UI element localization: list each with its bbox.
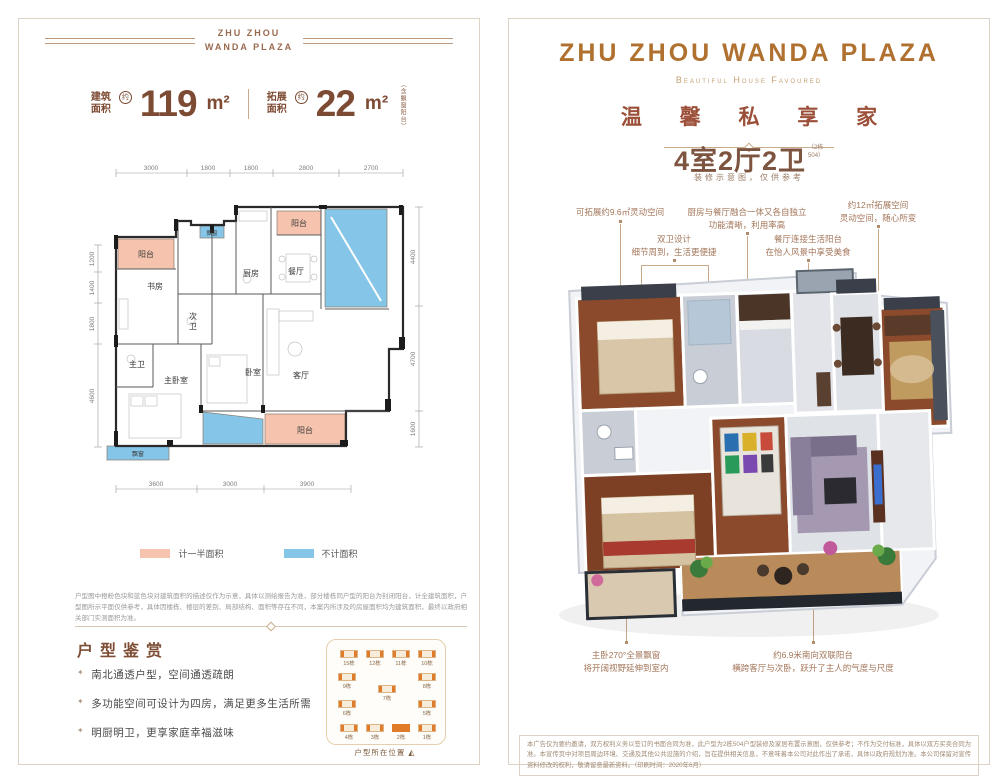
bullet-icon: ✦: [77, 667, 84, 680]
expand-area-value: 22: [316, 83, 355, 125]
room-balcony-tr: 阳台: [291, 218, 307, 228]
floorplan-panel: ZHU ZHOU WANDA PLAZA 建筑 面积 约 119 m² 拓展 面…: [18, 18, 480, 765]
project-subtitle: Beautiful House Favoured: [509, 75, 989, 85]
building-9: 9栋: [332, 673, 362, 690]
leader-dot: [877, 225, 880, 228]
room-living: 客厅: [293, 370, 309, 380]
annotation-kitchen: 厨房与餐厅融合一体又各自独立功能清晰，利用率高: [687, 206, 806, 232]
room-bed-master: 主卧室: [164, 375, 188, 385]
render-panel: ZHU ZHOU WANDA PLAZA Beautiful House Fav…: [508, 18, 990, 765]
legend-swatch-pink: [140, 549, 170, 558]
north-arrow-icon: ◭: [408, 748, 415, 757]
spec-divider: [248, 89, 249, 119]
svg-text:4700: 4700: [410, 351, 417, 366]
building-10: 10栋: [412, 650, 442, 667]
svg-text:2800: 2800: [299, 165, 314, 172]
build-area-value: 119: [140, 83, 197, 125]
bullet-item: ✦明厨明卫，更享家庭幸福滋味: [77, 725, 337, 740]
sitemap-caption: 户型所在位置◭: [326, 747, 444, 758]
logo-rule-left: [45, 38, 195, 44]
room-balcony-tl: 阳台: [138, 249, 154, 259]
room-bay-top: 飘窗: [206, 229, 218, 237]
bullet-item: ✦南北通透户型，空间通透疏朗: [77, 667, 337, 682]
legend-half-area: 计一半面积: [140, 547, 223, 560]
svg-text:1800: 1800: [244, 165, 259, 172]
unit-spec-note: （2栋504）: [808, 145, 824, 161]
svg-text:3900: 3900: [300, 481, 315, 488]
floorplan-2d: 3000 1800 1800 2800 2700 3600 3000 3900 …: [81, 159, 431, 514]
room-bay-b: 飘窗: [132, 450, 144, 458]
room-bed2: 卧室: [245, 367, 261, 377]
plan-legend: 计一半面积 不计面积: [19, 547, 479, 560]
legend-swatch-blue: [284, 549, 314, 558]
legal-fine-print: 本广告仅为要约邀请，双方权利义务以签订的书面合同为准，此户型为2栋504户型装修…: [519, 735, 979, 776]
build-area-label: 建筑 面积: [91, 92, 111, 117]
approx-badge: 约: [119, 91, 132, 104]
leader-dot: [619, 220, 622, 223]
section-divider: [75, 623, 467, 630]
brand-logo: ZHU ZHOU WANDA PLAZA: [19, 27, 479, 54]
building-7: 7栋: [372, 685, 402, 702]
svg-text:1200: 1200: [89, 251, 96, 266]
approx-badge: 约: [295, 91, 308, 104]
feature-bullets: ✦南北通透户型，空间通透疏朗 ✦多功能空间可设计为四房，满足更多生活所需 ✦明厨…: [77, 667, 337, 754]
plan-disclaimer: 户型图中橙粉色块和蓝色块对建筑面积的描述仅作为示意，具体以测绘报告为准，部分楼栋…: [75, 591, 467, 624]
room-balcony-b: 阳台: [297, 425, 313, 435]
expand-area-unit: m²: [365, 93, 388, 115]
logo-rule-right: [303, 38, 453, 44]
room-bath2: 卫: [189, 322, 197, 331]
expand-area-label: 拓展 面积: [267, 92, 287, 117]
building-8: 8栋: [412, 673, 442, 690]
svg-text:3000: 3000: [144, 165, 159, 172]
svg-text:1800: 1800: [201, 165, 216, 172]
room-study: 书房: [147, 281, 163, 291]
logo-text: ZHU ZHOU WANDA PLAZA: [205, 27, 293, 54]
svg-text:1800: 1800: [89, 316, 96, 331]
unit-spec-caption: 装修示意图，仅供参考: [509, 172, 989, 183]
legend-no-area: 不计面积: [284, 547, 358, 560]
svg-text:3600: 3600: [149, 481, 164, 488]
svg-text:4400: 4400: [410, 249, 417, 264]
building-6: 6栋: [332, 700, 362, 717]
project-title: ZHU ZHOU WANDA PLAZA: [509, 39, 989, 68]
annotation-expand12: 约12㎡拓展空间灵动空间，随心所变: [840, 199, 917, 225]
room-bath2: 次: [189, 311, 197, 321]
render-3d: [527, 255, 971, 659]
area-spec-row: 建筑 面积 约 119 m² 拓展 面积 约 22 m² （含飘窗阳台）: [19, 81, 479, 127]
room-dining: 餐厅: [288, 267, 304, 276]
build-area-unit: m²: [207, 93, 230, 115]
bullet-item: ✦多功能空间可设计为四房，满足更多生活所需: [77, 696, 337, 711]
section-title: 户型鉴赏: [77, 637, 169, 661]
site-map: 15栋 12栋 11栋 10栋 9栋 8栋 7栋 6栋 5栋 4栋 3栋 2栋 …: [326, 639, 446, 745]
svg-text:2700: 2700: [364, 165, 379, 172]
svg-text:1400: 1400: [89, 280, 96, 295]
building-5: 5栋: [412, 700, 442, 717]
svg-text:4600: 4600: [89, 388, 96, 403]
bullet-icon: ✦: [77, 696, 84, 709]
room-bath-master: 主卫: [129, 359, 145, 369]
brochure-page: ZHU ZHOU WANDA PLAZA 建筑 面积 约 119 m² 拓展 面…: [0, 0, 1000, 782]
bullet-icon: ✦: [77, 725, 84, 738]
svg-text:3000: 3000: [223, 481, 238, 488]
project-slogan: 温 馨 私 享 家: [509, 101, 989, 131]
building-1: 1栋: [412, 724, 442, 741]
room-kitchen: 厨房: [243, 268, 259, 278]
expand-area-note: （含飘窗阳台）: [398, 81, 407, 127]
leader-dot: [746, 232, 749, 235]
svg-text:1600: 1600: [410, 421, 417, 436]
annotation-expand96: 可拓展约9.6㎡灵动空间: [576, 206, 664, 219]
